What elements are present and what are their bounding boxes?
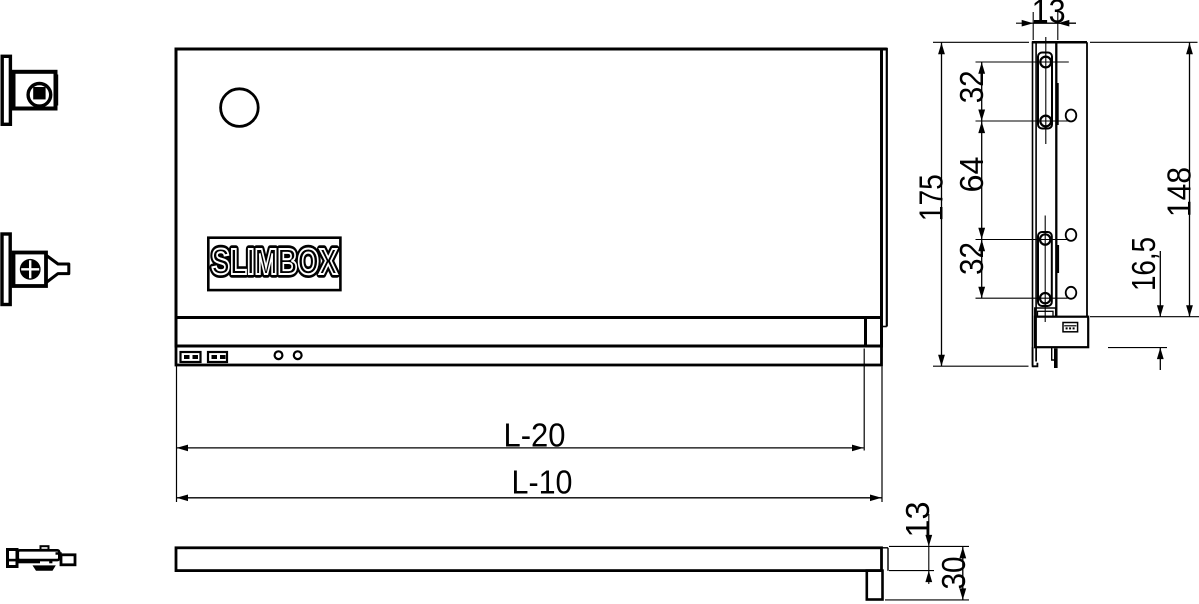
svg-text:L-20: L-20 xyxy=(504,417,566,454)
svg-text:64: 64 xyxy=(953,157,990,193)
svg-text:L-10: L-10 xyxy=(512,464,573,501)
svg-text:30: 30 xyxy=(935,557,972,590)
svg-text:13: 13 xyxy=(1032,0,1066,29)
svg-text:SLIMBOX: SLIMBOX xyxy=(212,241,338,282)
svg-text:13: 13 xyxy=(899,502,936,538)
svg-text:32: 32 xyxy=(953,242,990,275)
svg-text:16,5: 16,5 xyxy=(1125,237,1162,291)
svg-text:148: 148 xyxy=(1161,167,1198,217)
svg-text:175: 175 xyxy=(912,174,949,221)
svg-text:32: 32 xyxy=(953,70,990,103)
